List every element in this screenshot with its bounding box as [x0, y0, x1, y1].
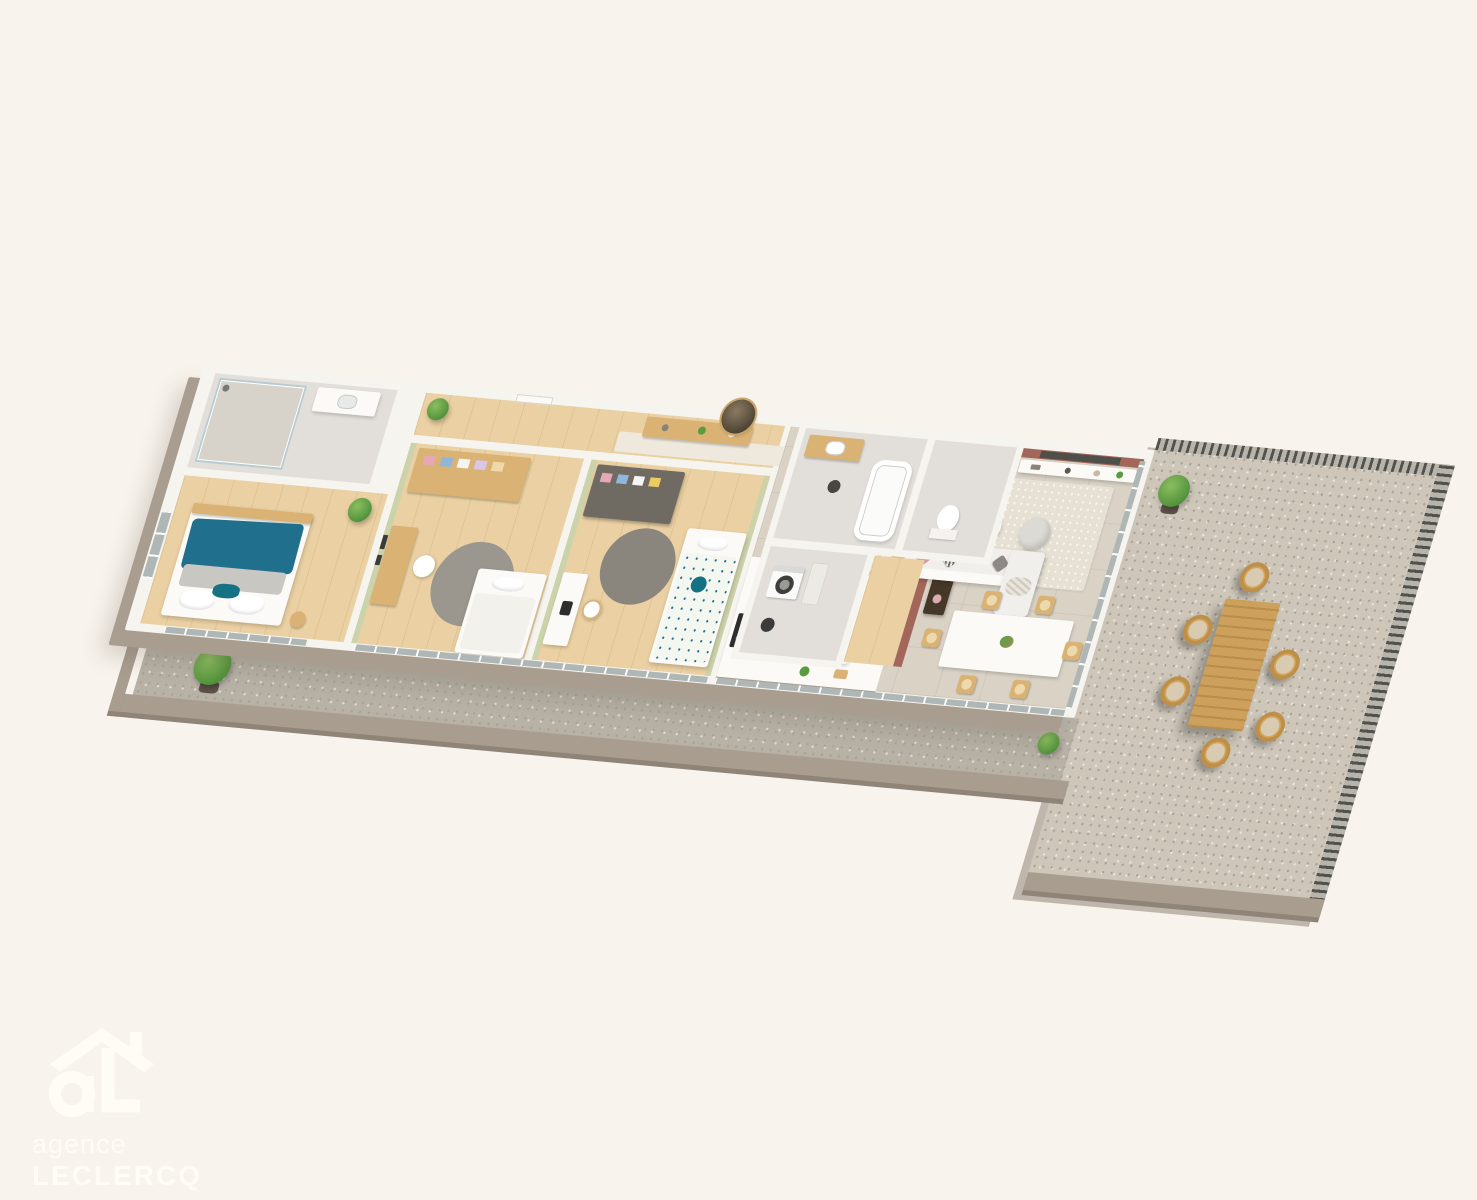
shelf-bowl — [1093, 470, 1101, 477]
terrace-fence-right — [1304, 464, 1455, 917]
shelf-plant — [1115, 471, 1124, 479]
folded-clothes — [616, 474, 629, 484]
robot-vacuum — [759, 617, 777, 632]
dining-chair — [920, 628, 943, 648]
folded-clothes — [491, 462, 505, 472]
walk-in-shower — [195, 378, 308, 470]
scene: agence LECLERCQ — [0, 0, 1477, 1200]
folded-clothes — [457, 459, 471, 469]
shelf-books — [1030, 464, 1041, 470]
pillow — [490, 576, 526, 593]
hall-plant — [424, 397, 452, 421]
outdoor-chair — [1157, 675, 1195, 708]
room-master-bedroom — [140, 475, 388, 642]
terrace-plant — [1154, 473, 1194, 508]
terrace-fence-top — [1155, 438, 1455, 477]
watermark: agence LECLERCQ — [26, 1018, 266, 1192]
throw-blanket — [1003, 576, 1033, 596]
cutting-board — [833, 669, 849, 679]
folded-clothes — [632, 476, 645, 486]
bedside-table — [288, 611, 308, 628]
folded-clothes — [600, 473, 613, 483]
shower-head-icon — [222, 384, 231, 392]
agency-logo — [26, 1018, 156, 1122]
bathroom-vanity — [804, 434, 866, 461]
folded-clothes — [474, 460, 488, 470]
bedroom-plant — [345, 497, 375, 523]
watermark-line1: agence — [32, 1129, 266, 1160]
flower-vase — [931, 594, 942, 604]
terrace-parapet — [1023, 872, 1325, 917]
master-bed — [160, 503, 313, 626]
decor-vase — [661, 424, 670, 432]
washbasin — [824, 440, 847, 456]
watermark-line2: LECLERCQ — [32, 1160, 266, 1192]
centerpiece — [998, 635, 1015, 648]
outdoor-chair — [1236, 561, 1274, 594]
decor-plant — [697, 426, 707, 435]
boxwood-ball — [1035, 731, 1063, 755]
folded-clothes — [439, 457, 453, 467]
washing-machine — [765, 565, 805, 600]
shelf-vase — [1064, 467, 1072, 474]
dining-chair — [1009, 679, 1032, 699]
outdoor-chair — [1179, 613, 1217, 646]
desk-chair — [579, 599, 604, 621]
dining-table — [938, 610, 1075, 677]
toilet-tank — [928, 528, 958, 540]
pillow — [696, 535, 731, 552]
counter-plant — [798, 666, 811, 677]
outdoor-chair — [1197, 736, 1235, 769]
dining-chair — [955, 675, 978, 695]
dining-chair — [1034, 595, 1057, 615]
outdoor-chair — [1266, 648, 1304, 681]
folded-clothes — [648, 477, 661, 487]
folded-clothes — [422, 455, 436, 465]
outdoor-chair — [1251, 711, 1289, 744]
ensuite-vanity — [311, 387, 381, 417]
ensuite-basin — [336, 394, 359, 410]
stool — [826, 479, 842, 493]
laptop-icon — [559, 601, 574, 616]
balcony-shrub — [189, 645, 237, 686]
floor-plan — [61, 362, 1459, 958]
duvet — [459, 593, 537, 655]
dark-wardrobe — [583, 464, 686, 524]
open-wardrobe — [406, 448, 531, 502]
room-ensuite-shower — [187, 373, 398, 484]
